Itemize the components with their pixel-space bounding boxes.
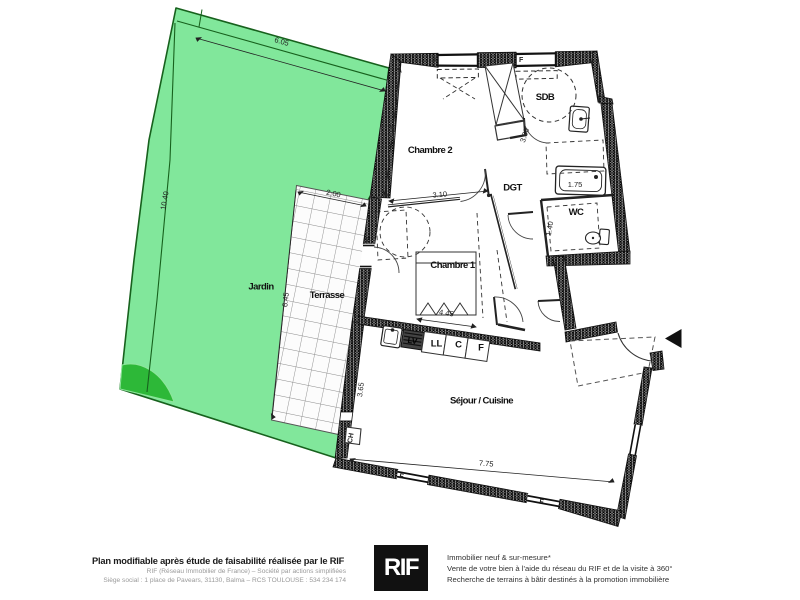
svg-text:F: F [519,57,524,64]
svg-text:6.45: 6.45 [280,292,290,307]
svg-text:F: F [433,58,438,65]
svg-text:F: F [478,343,484,354]
svg-text:Terrasse: Terrasse [310,290,345,301]
svg-text:C: C [455,340,462,351]
svg-text:Jardin: Jardin [248,282,274,293]
svg-text:LL: LL [431,339,443,350]
svg-text:1.75: 1.75 [568,180,583,189]
svg-text:PF: PF [364,234,372,243]
svg-text:SDB: SDB [536,92,555,103]
svg-text:Chambre 2: Chambre 2 [408,145,452,156]
svg-text:WC: WC [569,207,584,218]
svg-text:7.75: 7.75 [479,458,494,468]
svg-text:Séjour / Cuisine: Séjour / Cuisine [450,396,513,407]
svg-text:DGT: DGT [503,183,522,194]
svg-text:Chambre 1: Chambre 1 [430,260,475,271]
svg-text:3.10: 3.10 [432,189,447,199]
